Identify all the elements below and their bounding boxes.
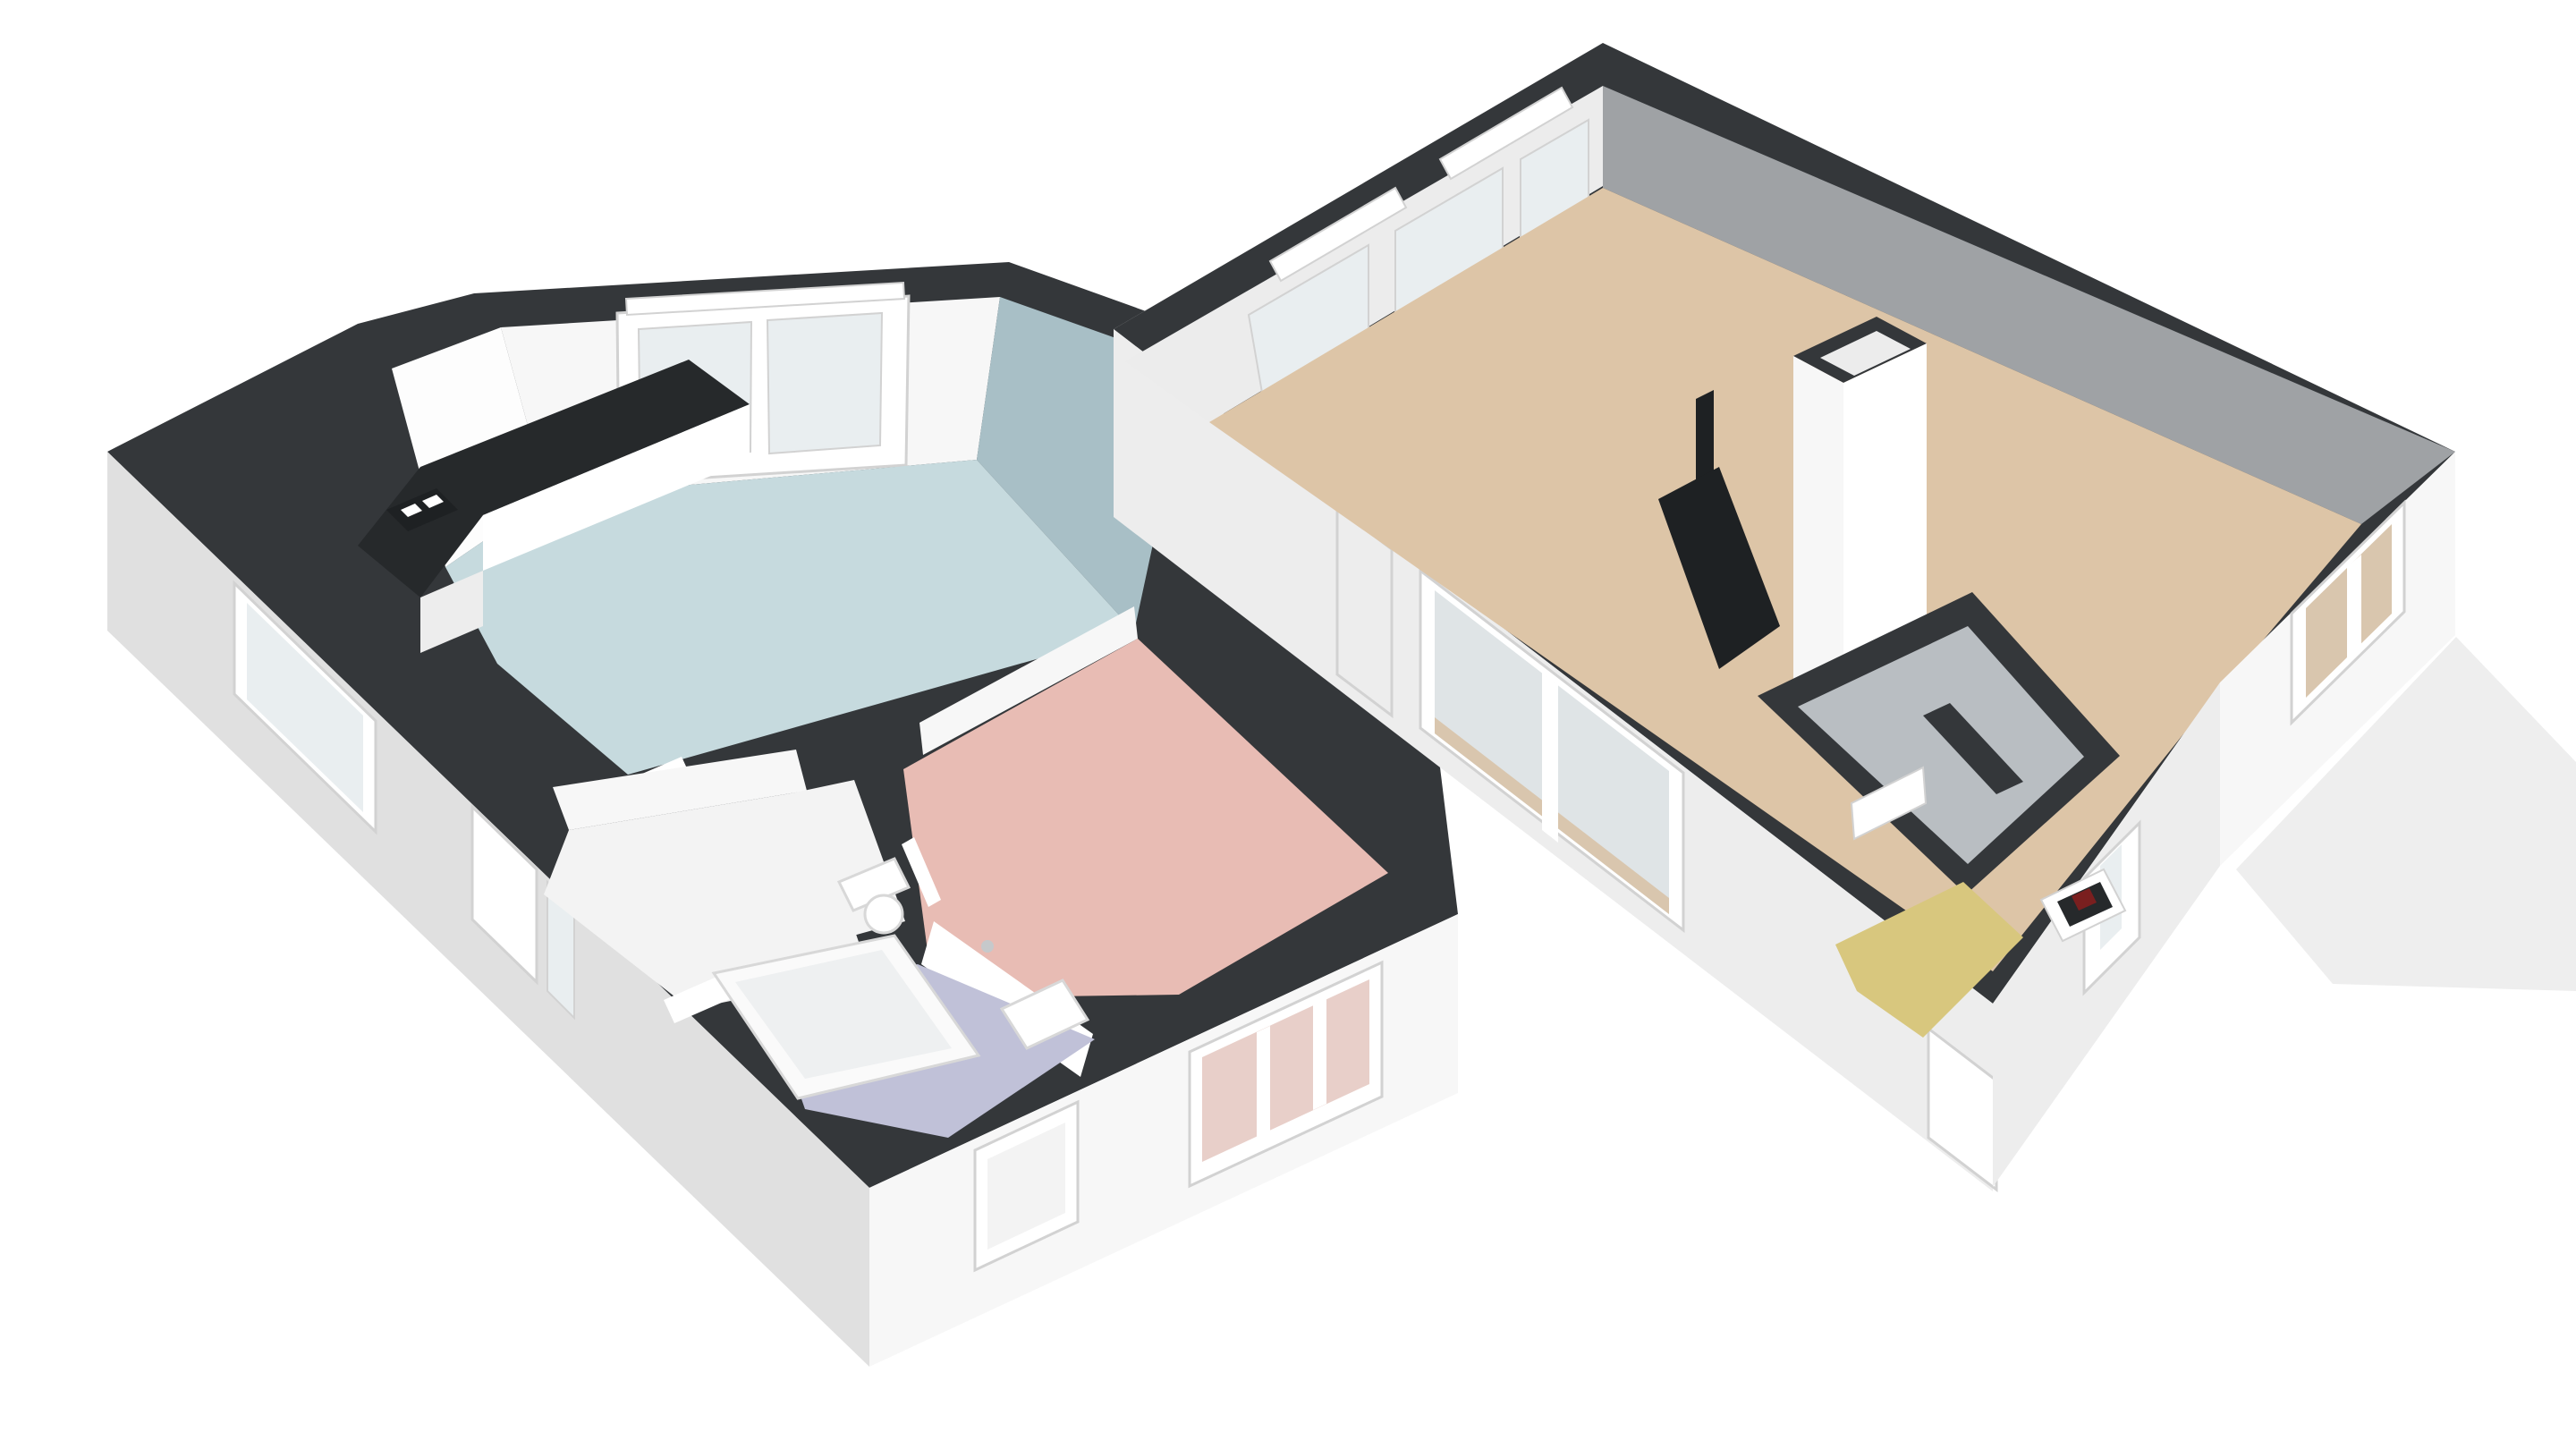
sw-sliding-door-mullion bbox=[1542, 673, 1558, 843]
bedroom-window-mullion bbox=[1257, 1026, 1270, 1137]
toilet-bowl bbox=[865, 895, 902, 933]
se-window-mullion bbox=[2347, 555, 2361, 660]
shower-head bbox=[981, 940, 994, 953]
floorplan-3d-render bbox=[0, 0, 2576, 1449]
french-door-glass-right bbox=[767, 313, 882, 453]
bedroom-window-mullion bbox=[1313, 999, 1326, 1110]
floorplan-viewport bbox=[0, 0, 2576, 1449]
